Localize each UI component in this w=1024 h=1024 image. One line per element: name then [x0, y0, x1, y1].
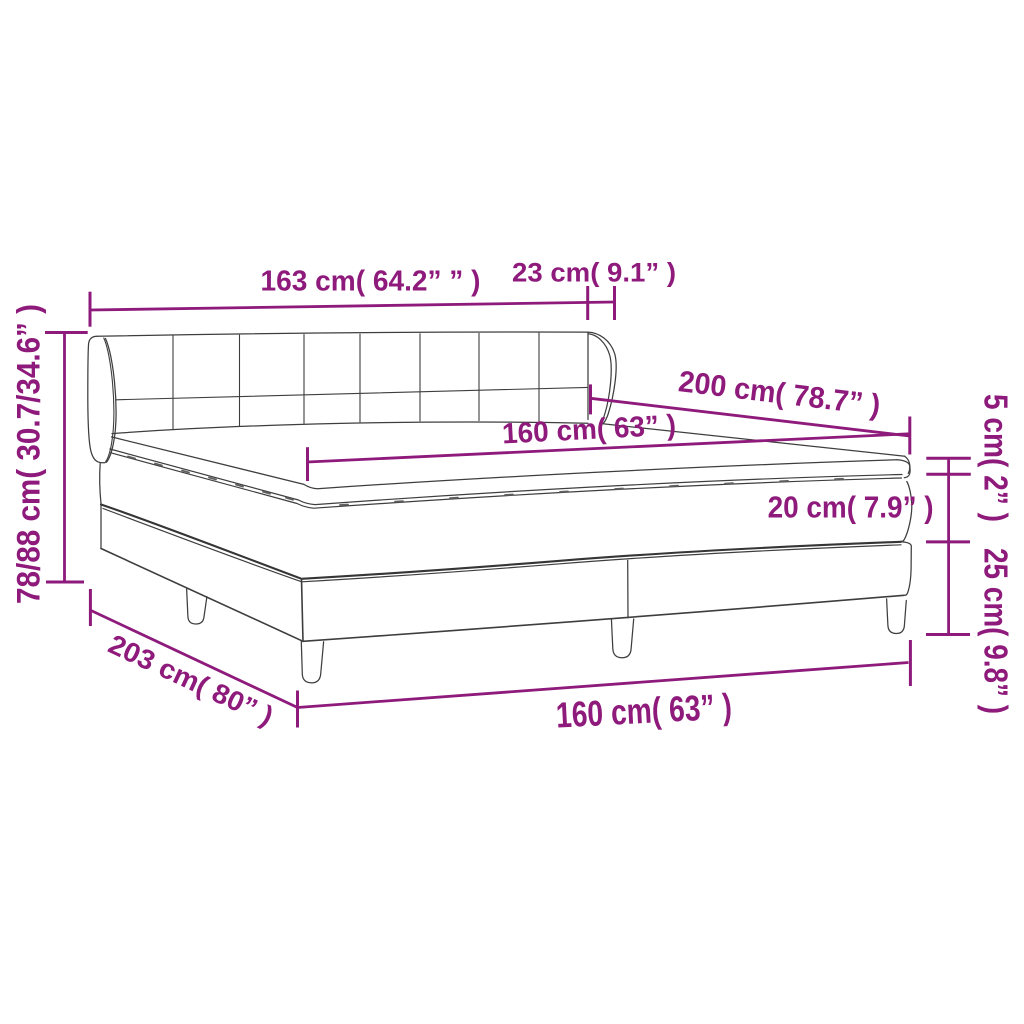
svg-text:200 cm( 78.7” ): 200 cm( 78.7” )	[677, 365, 882, 422]
svg-text:160 cm( 63” ): 160 cm( 63” )	[555, 685, 733, 735]
svg-text:163 cm( 64.2” ” ): 163 cm( 64.2” ” )	[261, 265, 481, 297]
svg-text:25 cm( 9.8” ): 25 cm( 9.8” )	[978, 548, 1015, 714]
svg-text:23 cm( 9.1” ): 23 cm( 9.1” )	[512, 258, 676, 288]
svg-text:20 cm( 7.9” ): 20 cm( 7.9” )	[768, 489, 934, 524]
svg-text:5 cm( 2” ): 5 cm( 2” )	[978, 394, 1015, 522]
svg-text:203 cm( 80” ): 203 cm( 80” )	[104, 628, 278, 731]
svg-text:160 cm( 63” ): 160 cm( 63” )	[501, 409, 676, 450]
svg-text:78/88 cm( 30.7/34.6” ): 78/88 cm( 30.7/34.6” )	[11, 304, 47, 604]
